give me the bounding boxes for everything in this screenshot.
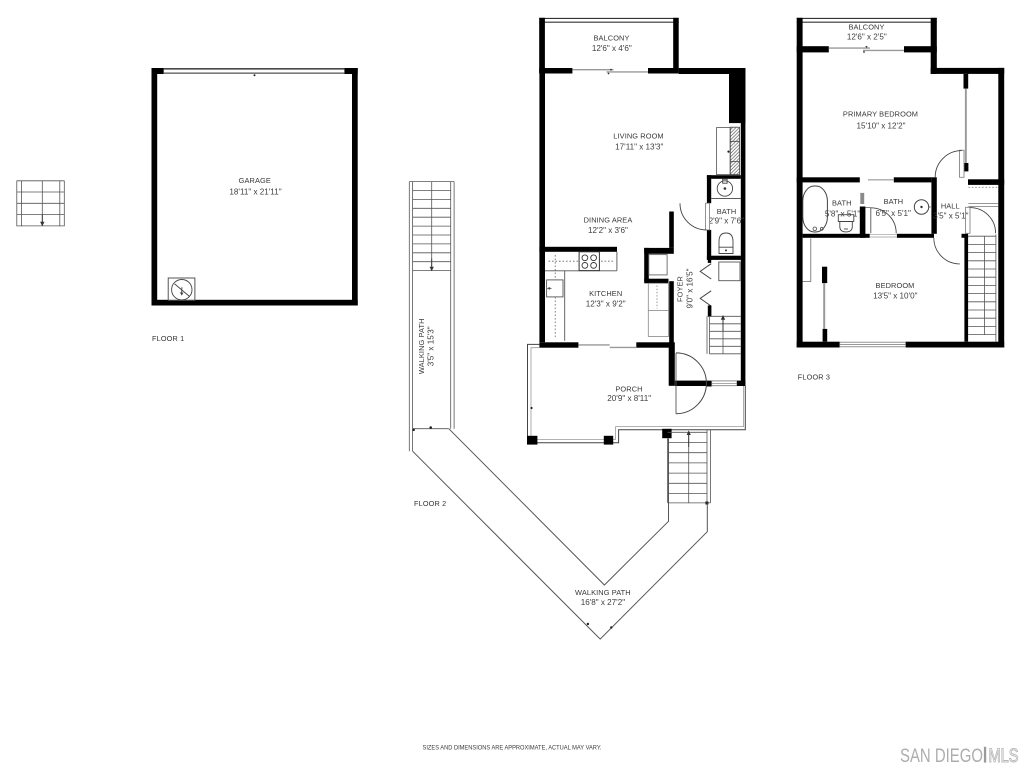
svg-text:HALL: HALL — [941, 202, 960, 211]
svg-text:BEDROOM: BEDROOM — [876, 281, 915, 290]
svg-text:12'3" x 9'2": 12'3" x 9'2" — [586, 299, 626, 308]
svg-text:SIZES AND DIMENSIONS ARE APPRO: SIZES AND DIMENSIONS ARE APPROXIMATE, AC… — [423, 745, 602, 752]
svg-text:WALKING PATH: WALKING PATH — [575, 588, 631, 597]
svg-text:SAN DIEGO: SAN DIEGO — [900, 746, 983, 767]
svg-text:BATH: BATH — [832, 199, 852, 208]
svg-text:3'5" x 5'1": 3'5" x 5'1" — [933, 212, 969, 221]
svg-text:5'8" x 5'1": 5'8" x 5'1" — [825, 209, 861, 218]
svg-text:6'5" x 5'1": 6'5" x 5'1" — [876, 209, 912, 218]
svg-text:PORCH: PORCH — [615, 384, 642, 393]
svg-text:16'8" x 27'2": 16'8" x 27'2" — [581, 598, 626, 607]
svg-text:LIVING ROOM: LIVING ROOM — [613, 131, 663, 140]
svg-text:BATH: BATH — [884, 197, 904, 206]
svg-text:18'11" x 21'11": 18'11" x 21'11" — [229, 187, 281, 196]
svg-text:FLOOR 1: FLOOR 1 — [152, 334, 184, 343]
svg-text:12'6" x 2'5": 12'6" x 2'5" — [847, 33, 887, 42]
svg-text:9'0" x 16'5": 9'0" x 16'5" — [686, 268, 695, 308]
svg-text:FOYER: FOYER — [676, 276, 685, 302]
svg-text:15'10" x 12'2": 15'10" x 12'2" — [857, 121, 906, 130]
svg-text:FLOOR 3: FLOOR 3 — [798, 372, 830, 381]
svg-text:17'11" x 13'3": 17'11" x 13'3" — [615, 142, 663, 151]
svg-text:WALKING PATH: WALKING PATH — [417, 318, 426, 374]
svg-text:12'6" x 4'6": 12'6" x 4'6" — [592, 44, 632, 53]
svg-text:KITCHEN: KITCHEN — [589, 289, 622, 298]
svg-text:12'2" x 3'6": 12'2" x 3'6" — [588, 226, 628, 235]
svg-text:DINING AREA: DINING AREA — [584, 216, 633, 225]
svg-text:13'5" x 10'0": 13'5" x 10'0" — [873, 291, 918, 300]
svg-text:PRIMARY BEDROOM: PRIMARY BEDROOM — [843, 110, 918, 119]
svg-text:2'9" x 7'6": 2'9" x 7'6" — [709, 216, 745, 225]
svg-text:BALCONY: BALCONY — [593, 34, 629, 43]
svg-text:20'9" x 8'11": 20'9" x 8'11" — [607, 394, 651, 403]
svg-text:FLOOR 2: FLOOR 2 — [414, 499, 446, 508]
svg-text:MLS: MLS — [989, 746, 1019, 767]
svg-text:BATH: BATH — [717, 207, 737, 216]
svg-text:BALCONY: BALCONY — [848, 23, 884, 32]
svg-text:GARAGE: GARAGE — [239, 176, 271, 185]
svg-text:3'5" x 15'3": 3'5" x 15'3" — [427, 326, 436, 366]
